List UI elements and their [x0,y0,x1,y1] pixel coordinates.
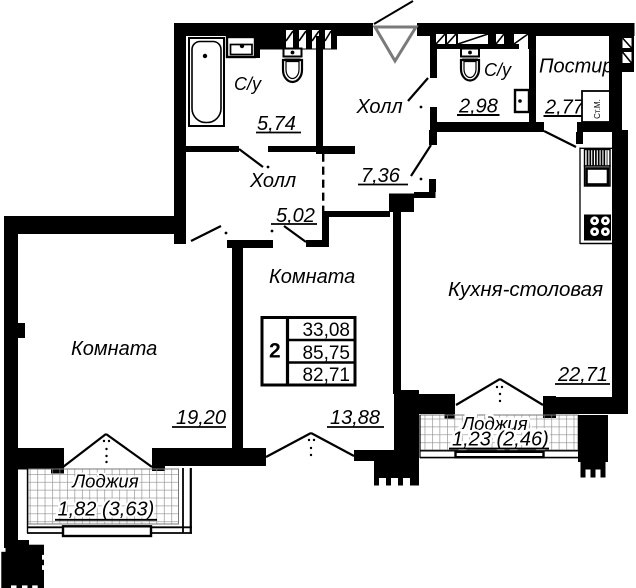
svg-text:С/у: С/у [484,60,512,80]
svg-text:Холл: Холл [356,96,403,118]
svg-text:Комната: Комната [269,266,355,288]
svg-text:Кухня-столовая: Кухня-столовая [448,278,603,301]
svg-text:С/у: С/у [234,74,262,94]
svg-text:13,88: 13,88 [330,407,380,429]
svg-text:Ст.М.: Ст.М. [593,99,602,119]
svg-text:33,08: 33,08 [302,320,350,341]
svg-text:82,71: 82,71 [302,365,350,386]
svg-text:19,20: 19,20 [176,407,226,429]
svg-text:22,71: 22,71 [557,364,608,386]
svg-text:Комната: Комната [71,338,157,360]
svg-text:Холл: Холл [249,170,296,192]
svg-text:Постир: Постир [539,56,614,78]
svg-text:1,23 (2,46): 1,23 (2,46) [452,429,549,451]
svg-text:2: 2 [269,340,281,363]
svg-text:Лоджия: Лоджия [72,471,139,492]
svg-text:1,82 (3,63): 1,82 (3,63) [58,498,155,520]
svg-text:85,75: 85,75 [302,343,350,364]
